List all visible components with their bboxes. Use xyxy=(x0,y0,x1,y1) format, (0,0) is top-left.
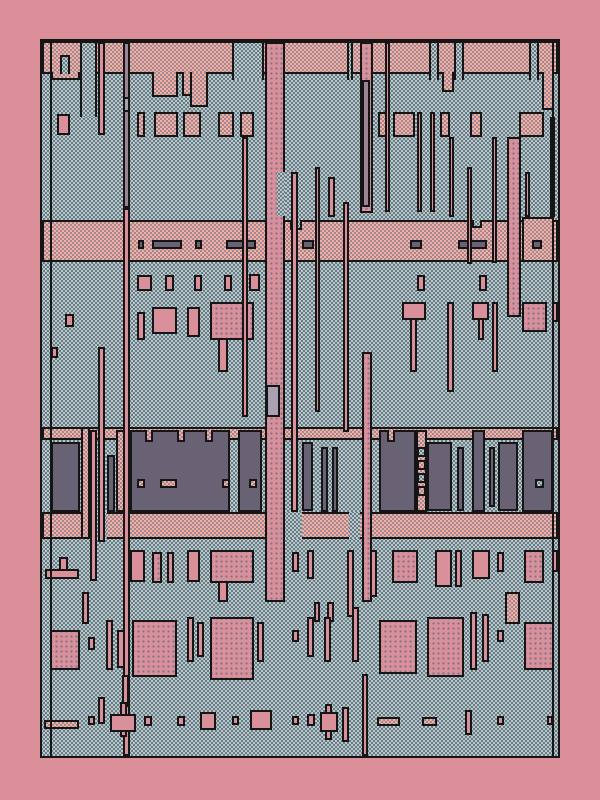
slab-hole xyxy=(160,479,177,488)
tree-bar xyxy=(117,630,125,668)
pin xyxy=(417,447,426,457)
band-tower xyxy=(429,41,439,80)
slab-notch xyxy=(145,430,153,442)
chip-sq xyxy=(137,275,152,291)
vbar xyxy=(291,172,298,512)
slab-hole xyxy=(535,479,544,488)
dash xyxy=(410,240,422,249)
pattern-canvas xyxy=(40,39,560,758)
comp-col xyxy=(416,430,427,512)
dark-slab xyxy=(489,447,495,507)
tree-bar xyxy=(197,622,204,657)
dark-slab xyxy=(238,430,262,512)
tree-bar xyxy=(324,617,331,662)
tree-block xyxy=(210,617,254,680)
dot-cross xyxy=(320,712,338,732)
dot-sq xyxy=(292,716,299,725)
vcol-inset xyxy=(362,80,370,207)
mini-bar xyxy=(314,602,320,622)
dark-slab xyxy=(107,455,115,512)
mid-sq xyxy=(51,347,58,358)
dash xyxy=(226,240,256,249)
dark-slab xyxy=(302,442,313,511)
box-row-cell xyxy=(393,112,415,137)
box-row-cell xyxy=(137,112,145,137)
tree-sq xyxy=(497,630,504,642)
dash xyxy=(152,240,182,249)
band-tower xyxy=(347,41,353,80)
slab-notch xyxy=(205,430,213,442)
low-block xyxy=(152,552,162,583)
chip-sq xyxy=(479,275,487,291)
low-block xyxy=(435,550,452,587)
tree-sq xyxy=(88,637,95,650)
vcol-notch xyxy=(277,172,285,216)
low-bar xyxy=(455,550,462,587)
dash xyxy=(138,240,144,249)
tree-bar xyxy=(482,614,489,662)
vbar xyxy=(492,302,498,372)
dark-slab xyxy=(379,430,416,512)
dot-sq xyxy=(144,716,152,726)
tree-block xyxy=(379,620,417,674)
comp-gap xyxy=(349,512,360,539)
vbar-seg xyxy=(123,97,130,112)
tree-bar xyxy=(352,607,359,662)
low-block xyxy=(497,552,504,572)
vbar xyxy=(98,42,105,135)
mini-block xyxy=(505,592,520,624)
low-block xyxy=(392,550,418,583)
dot-sq xyxy=(232,716,239,725)
pin xyxy=(417,473,426,483)
tree-block xyxy=(132,620,177,677)
box-row-cell xyxy=(218,112,234,137)
gutter-line xyxy=(50,41,52,756)
vbar xyxy=(123,208,130,756)
mid-sq xyxy=(65,314,74,327)
box-row-cell xyxy=(240,112,254,137)
low-block xyxy=(472,550,490,579)
dot-step xyxy=(250,710,272,730)
dot-sq xyxy=(88,716,95,725)
mid-tstem xyxy=(410,318,417,372)
tree-sq xyxy=(292,630,299,642)
mid-bar xyxy=(137,312,145,340)
vbar xyxy=(525,172,530,217)
dark-slab xyxy=(457,447,464,511)
mid-tstem xyxy=(478,318,484,340)
vbar xyxy=(98,697,105,724)
pin xyxy=(417,486,426,496)
dark-slab xyxy=(522,430,553,512)
dark-slab xyxy=(498,442,518,511)
comp-gap xyxy=(285,512,302,539)
dot-dash xyxy=(377,717,400,726)
low-block xyxy=(307,550,314,579)
dark-slab xyxy=(51,442,80,512)
low-block xyxy=(167,552,174,583)
low-block xyxy=(187,550,200,582)
vbar xyxy=(328,177,335,217)
vbar xyxy=(449,137,454,217)
box-row-cell xyxy=(440,112,450,137)
mini-bar xyxy=(82,592,89,624)
dark-slab xyxy=(427,442,452,511)
tree-block xyxy=(524,622,554,670)
top-band xyxy=(42,41,558,74)
vcol xyxy=(507,137,521,317)
vbar xyxy=(430,112,435,212)
vbar xyxy=(98,347,105,542)
dot-cross xyxy=(110,714,136,732)
dash xyxy=(302,240,314,249)
band-notch xyxy=(60,55,70,74)
dark-slab xyxy=(130,430,230,512)
dash xyxy=(195,240,202,249)
band-tab xyxy=(190,72,208,107)
gutter-line xyxy=(552,41,554,756)
vbar xyxy=(492,137,497,263)
dot-sq xyxy=(497,716,504,725)
mid-bar xyxy=(447,302,454,392)
band-tab xyxy=(152,72,178,97)
dot-sq xyxy=(307,714,315,726)
box-row-cell xyxy=(154,112,178,137)
dash xyxy=(458,240,487,249)
mid-arrow xyxy=(187,307,200,337)
dark-slab xyxy=(472,430,485,512)
vbar xyxy=(467,167,472,264)
box-row-cell xyxy=(470,112,482,137)
chip-sq xyxy=(165,275,174,291)
band-tower xyxy=(80,41,97,117)
vbar xyxy=(343,202,349,432)
low-bar xyxy=(370,550,377,597)
band-tab xyxy=(442,72,454,92)
vbar xyxy=(123,42,130,208)
dash xyxy=(532,240,542,249)
dot-dash xyxy=(422,717,437,726)
slab-hole xyxy=(249,479,257,488)
dot-bar xyxy=(465,710,472,735)
vcol xyxy=(265,42,285,602)
mid-block xyxy=(152,307,177,334)
chip-sq xyxy=(249,274,260,291)
low-block xyxy=(130,550,145,582)
slab-notch xyxy=(177,430,185,442)
tree-bar xyxy=(307,617,314,657)
tree-bar xyxy=(470,612,477,670)
band-tower xyxy=(454,41,464,80)
low-block xyxy=(292,552,299,572)
dark-slab xyxy=(332,447,338,512)
mid-stem xyxy=(218,338,228,372)
slab-hole xyxy=(137,479,145,488)
dot-bar xyxy=(362,674,368,756)
dot-bar xyxy=(342,707,349,742)
vbar xyxy=(315,167,320,412)
tree-bar xyxy=(106,620,113,670)
band-notch xyxy=(472,220,482,228)
low-block xyxy=(210,550,254,583)
pin xyxy=(417,460,426,470)
tree-bar xyxy=(187,617,194,662)
dot-l xyxy=(200,712,216,730)
comp-col xyxy=(81,427,90,539)
slab-notch xyxy=(387,430,395,442)
vcol-inset xyxy=(266,385,280,417)
chip-sq xyxy=(194,275,202,291)
tree-blob xyxy=(50,630,80,670)
chip-sq xyxy=(417,275,425,291)
low-stem xyxy=(218,581,228,602)
vbar xyxy=(90,430,97,581)
box-row-cell xyxy=(519,112,544,137)
tree-block xyxy=(427,617,464,677)
low-block xyxy=(524,550,544,583)
tree-bar xyxy=(257,622,264,662)
page-background: { "palette": { "margin": "#DB8F99", "out… xyxy=(0,0,600,800)
mid-tcap xyxy=(522,302,547,332)
chip-sq xyxy=(224,275,232,291)
band-tower xyxy=(232,41,264,80)
dark-slab xyxy=(321,447,328,512)
dot-sq xyxy=(177,716,185,726)
band-tower xyxy=(529,41,539,80)
vbar xyxy=(242,137,248,417)
box-row-cell xyxy=(183,112,201,137)
edge-arrow xyxy=(57,114,70,135)
vbar xyxy=(385,42,390,212)
vbar xyxy=(417,112,422,212)
slab-hole xyxy=(222,479,230,488)
